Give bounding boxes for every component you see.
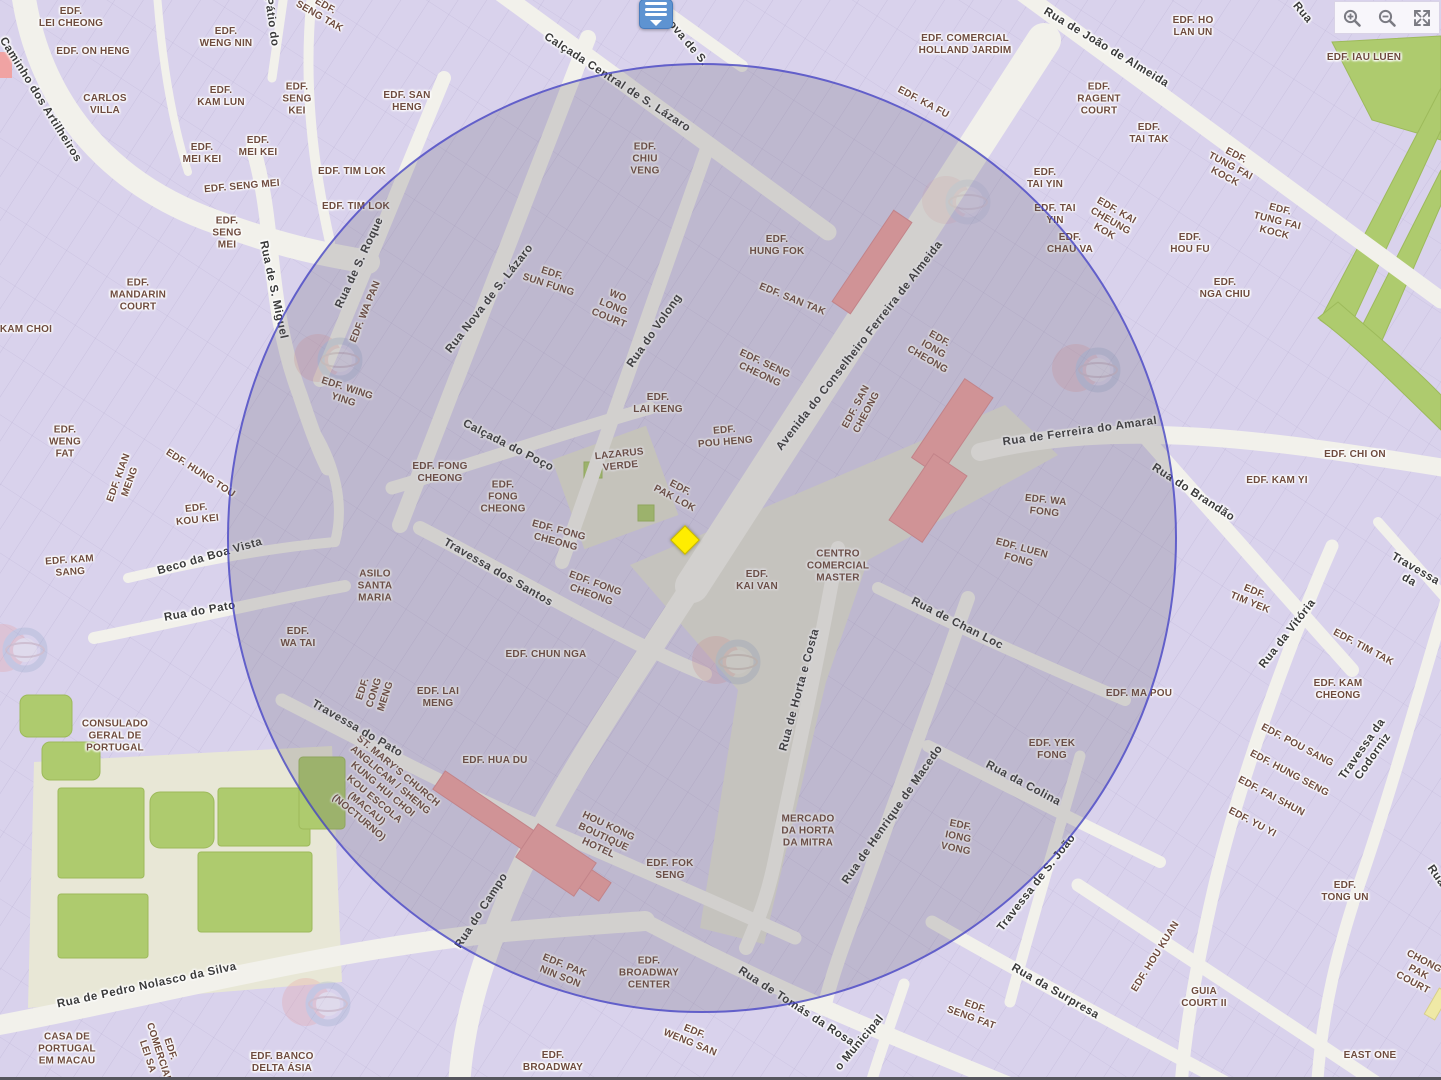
fullscreen-icon: [1412, 8, 1432, 28]
zoom-in-icon: [1342, 8, 1362, 28]
map-container[interactable]: EDF. LEI CHEONGEDF. ON HENGCARLOS VILLAE…: [0, 0, 1441, 1080]
fullscreen-button[interactable]: [1406, 4, 1438, 31]
list-pin-marker[interactable]: [639, 0, 673, 29]
map-canvas: [0, 0, 1441, 1080]
zoom-out-icon: [1377, 8, 1397, 28]
zoom-controls: [1334, 1, 1440, 34]
zoom-out-button[interactable]: [1371, 4, 1403, 31]
zoom-in-button[interactable]: [1336, 4, 1368, 31]
list-icon: [639, 0, 673, 29]
